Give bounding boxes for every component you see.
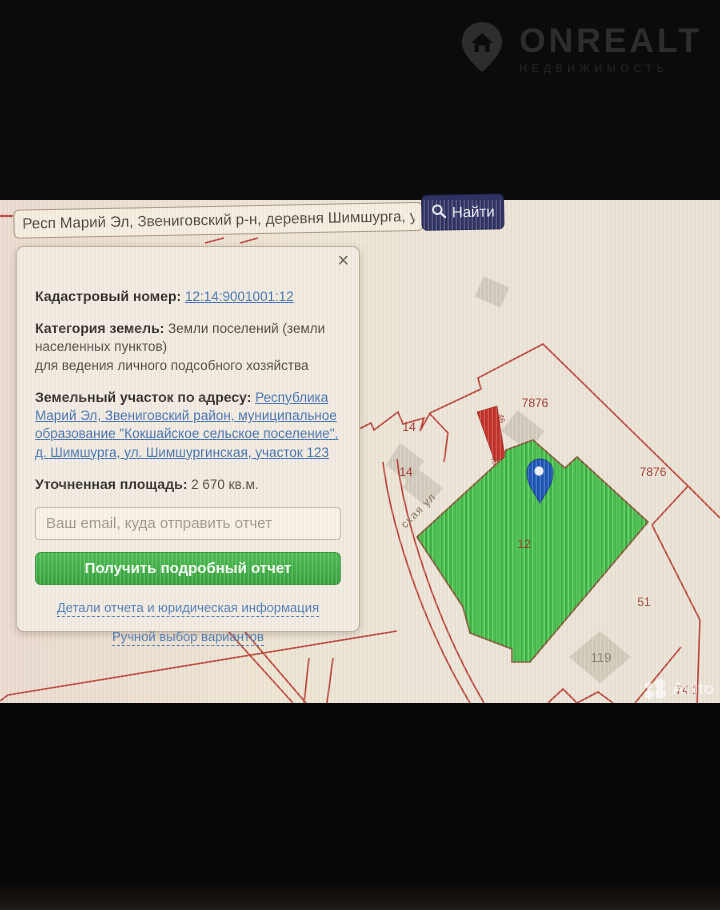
- label-7876-a: 7876: [522, 396, 549, 410]
- label-7876-b: 7876: [640, 465, 667, 479]
- label-14-a: 14: [402, 420, 416, 434]
- logo-title: ONREALT: [519, 24, 702, 58]
- manual-selection-link[interactable]: Ручной выбор вариантов: [35, 628, 341, 646]
- onrealt-logo: ONREALT НЕДВИЖИМОСТЬ: [459, 20, 702, 79]
- get-report-button[interactable]: Получить подробный отчет: [35, 552, 341, 585]
- bottom-black-bar: [0, 703, 720, 910]
- house-pin-icon: [459, 20, 505, 79]
- report-details-link[interactable]: Детали отчета и юридическая информация: [35, 599, 341, 617]
- close-icon[interactable]: ×: [337, 251, 349, 271]
- address-row: Земельный участок по адресу: Республика …: [35, 388, 341, 462]
- cadastral-number-label: Кадастровый номер:: [35, 288, 181, 304]
- avito-watermark-text: Avito: [672, 679, 714, 699]
- cadastral-number-row: Кадастровый номер: 12:14:9001001:12: [35, 287, 341, 306]
- area-row: Уточненная площадь: 2 670 кв.м.: [35, 475, 341, 494]
- photo-frame: ONREALT НЕДВИЖИМОСТЬ: [0, 0, 720, 910]
- find-button-label: Найти: [452, 203, 495, 221]
- area-label: Уточненная площадь:: [35, 476, 187, 492]
- top-black-bar: ONREALT НЕДВИЖИМОСТЬ: [0, 0, 720, 200]
- search-icon: [431, 203, 446, 222]
- cadastral-number-link[interactable]: 12:14:9001001:12: [185, 289, 294, 304]
- email-field[interactable]: [35, 507, 341, 540]
- logo-subtitle: НЕДВИЖИМОСТЬ: [519, 63, 702, 75]
- avito-dots-icon: [645, 679, 667, 699]
- land-category-label: Категория земель:: [35, 320, 164, 336]
- screen-area: 7876 7876 14 14 12 51 119 74/1 46 46 ска…: [0, 200, 720, 703]
- label-51: 51: [637, 595, 651, 609]
- label-119: 119: [591, 650, 612, 665]
- avito-watermark: Avito: [645, 679, 714, 699]
- land-use-value: для ведения личного подсобного хозяйства: [35, 357, 341, 375]
- land-category-row: Категория земель: Земли поселений (земли…: [35, 319, 341, 375]
- label-14-b: 14: [399, 465, 413, 479]
- area-value: 2 670 кв.м.: [191, 477, 258, 492]
- address-label: Земельный участок по адресу:: [35, 389, 251, 405]
- find-button[interactable]: Найти: [421, 193, 505, 231]
- parcel-info-panel: × Кадастровый номер: 12:14:9001001:12 Ка…: [16, 246, 360, 632]
- label-12: 12: [517, 537, 531, 551]
